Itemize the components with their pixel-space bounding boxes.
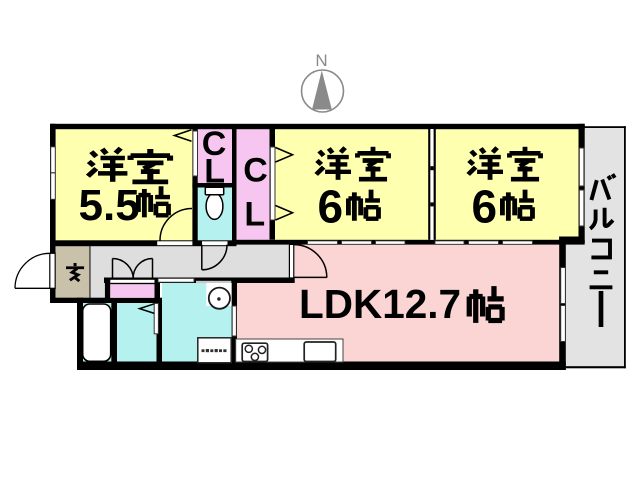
svg-text:6: 6 bbox=[472, 180, 498, 232]
svg-text:C: C bbox=[243, 152, 268, 190]
svg-text:6: 6 bbox=[318, 180, 344, 232]
svg-text:5.5: 5.5 bbox=[79, 181, 140, 230]
svg-text:L: L bbox=[204, 153, 225, 191]
svg-text:LDK12.7: LDK12.7 bbox=[299, 281, 461, 327]
svg-text:N: N bbox=[315, 51, 327, 70]
svg-text:L: L bbox=[244, 196, 265, 234]
